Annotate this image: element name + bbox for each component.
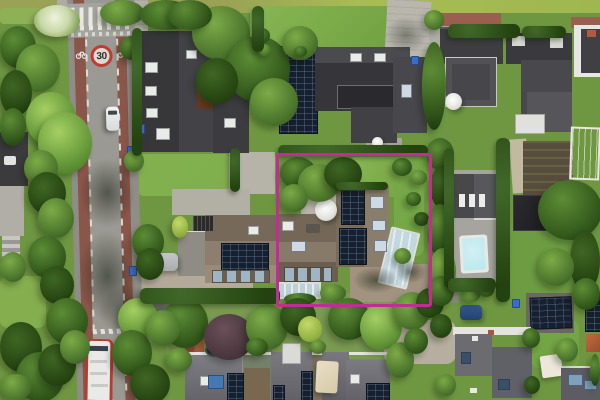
hedge xyxy=(448,24,520,38)
tree xyxy=(424,10,444,30)
solar-panels xyxy=(366,383,390,400)
solar-panels xyxy=(273,385,285,400)
bus-roof-hatch xyxy=(90,360,107,363)
pergola xyxy=(193,216,213,231)
tree xyxy=(0,374,32,400)
sun-loungers xyxy=(459,194,485,207)
tree xyxy=(196,58,238,104)
roof-terrace xyxy=(337,85,401,109)
skylight xyxy=(350,53,362,62)
car-blue xyxy=(460,305,482,320)
bicycle-road-marking-icon xyxy=(75,48,87,59)
tree xyxy=(430,314,452,338)
rooftop-ac-unit xyxy=(470,388,477,393)
patio xyxy=(172,189,250,215)
skylight xyxy=(498,379,510,390)
solar-panels xyxy=(301,371,313,400)
skylight xyxy=(568,374,583,386)
chimney xyxy=(587,30,596,37)
tree xyxy=(422,42,446,130)
hedge xyxy=(444,148,454,288)
tree xyxy=(0,252,26,282)
tree xyxy=(0,108,26,146)
waste-bin xyxy=(411,56,419,65)
bus-roof-hatch xyxy=(90,372,107,375)
bus-windshield xyxy=(89,346,108,351)
storage-boxes xyxy=(515,114,545,134)
property-highlight-box xyxy=(276,153,432,307)
skylight xyxy=(224,118,236,128)
hedge xyxy=(448,278,496,292)
skylight xyxy=(374,53,386,62)
house-roof xyxy=(205,215,278,241)
tree xyxy=(172,216,188,238)
aerial-photo: 30 xyxy=(0,0,600,400)
skylight xyxy=(461,352,471,364)
greenhouse xyxy=(569,126,600,180)
tree xyxy=(522,328,540,348)
garden-furniture xyxy=(4,156,16,165)
tree xyxy=(38,198,74,238)
orange-tile-roof xyxy=(586,334,600,352)
skylight xyxy=(146,108,158,118)
garage-roof xyxy=(178,231,208,276)
tree xyxy=(538,248,574,286)
skylight xyxy=(145,62,158,73)
skylight xyxy=(401,84,412,98)
roof-vent xyxy=(550,38,563,48)
tree xyxy=(556,338,578,362)
tree xyxy=(166,348,192,372)
hedge xyxy=(522,26,566,38)
tree xyxy=(250,78,298,126)
tree xyxy=(130,364,170,400)
parasol xyxy=(445,93,462,110)
tree-shadow xyxy=(384,16,428,54)
rooftop-ac-unit xyxy=(472,336,478,341)
skylight xyxy=(350,374,360,384)
tree xyxy=(168,0,212,30)
hedge xyxy=(496,138,510,302)
tree xyxy=(524,376,540,394)
solar-panels xyxy=(221,243,269,271)
tree xyxy=(298,316,322,342)
solar-panels xyxy=(529,296,572,329)
bus-roof-hatch xyxy=(91,384,108,387)
solar-panels xyxy=(227,373,244,400)
flowering-shrub xyxy=(34,5,80,37)
tree xyxy=(404,328,428,354)
tree xyxy=(294,46,307,57)
tree xyxy=(538,180,600,240)
shade-sail-awning xyxy=(315,360,339,393)
tree xyxy=(572,278,600,310)
pool-water xyxy=(462,237,486,270)
hedge xyxy=(252,6,264,52)
tree xyxy=(60,330,90,364)
roof-box xyxy=(282,343,301,364)
tree xyxy=(436,374,456,396)
chimney xyxy=(488,330,494,335)
tree xyxy=(136,248,164,280)
hedge xyxy=(140,288,280,304)
tree xyxy=(246,338,268,356)
skylight xyxy=(186,50,197,59)
hedge xyxy=(132,28,142,156)
speed-limit-value: 30 xyxy=(96,50,106,61)
blue-roof-panel xyxy=(208,375,224,389)
tree xyxy=(310,340,326,354)
skylight xyxy=(248,226,259,235)
tree xyxy=(146,310,180,346)
tree xyxy=(100,0,144,26)
waste-bin xyxy=(512,299,520,308)
hedge xyxy=(230,148,240,192)
tree xyxy=(590,354,600,386)
courtyard xyxy=(244,368,270,400)
window-row xyxy=(212,270,270,283)
car-windshield xyxy=(108,111,117,115)
skylight xyxy=(145,86,157,96)
skylight xyxy=(156,128,170,140)
